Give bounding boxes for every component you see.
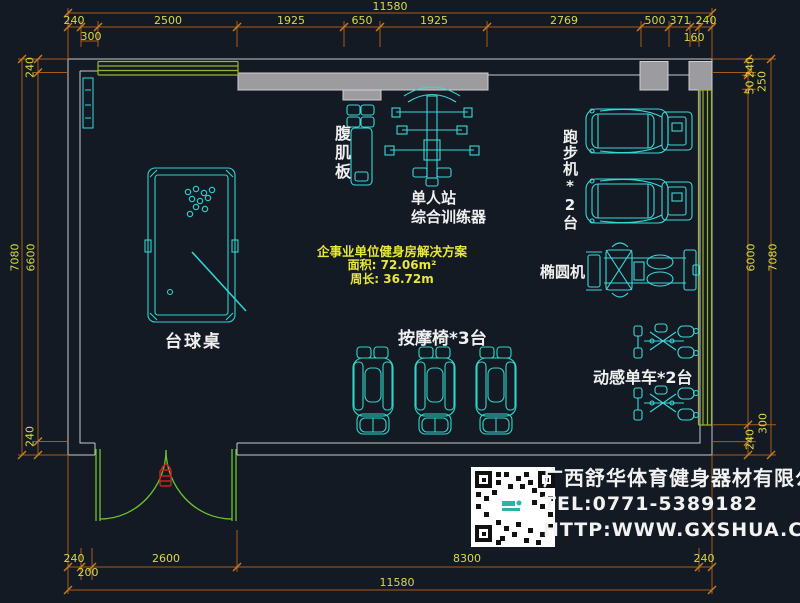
label-trainer-line2: 综合训练器 [411,206,486,227]
dim-bottom-total: 11580 [375,577,419,589]
solution-title: 企事业单位健身房解决方案 [314,245,470,258]
dim-left-total: 7080 [10,236,23,280]
dim-label: 240 [52,15,96,27]
label-trainer-line1: 单人站 [411,187,456,208]
dim-label: 240 [25,46,38,90]
wall-fixture [83,78,93,128]
dim-label: 240 [745,418,758,462]
dim-label: 2769 [542,15,586,27]
dim-label: 650 [340,15,384,27]
pool-table-drawing [145,168,246,322]
dim-label: 2600 [144,553,188,565]
label-pool-table: 台球桌 [165,327,222,352]
company-tel: TEL:0771-5389182 [543,494,800,515]
dim-label: 300 [69,31,113,43]
label-treadmill: 跑步机*2台 [560,129,581,231]
massage-chair-drawing [353,347,516,434]
solution-area: 面积: 72.06m² [314,259,470,272]
dim-label: 250 [757,60,770,104]
company-website: HTTP:WWW.GXSHUA.COM [543,520,800,541]
dim-label: 300 [758,402,771,446]
dim-label: 200 [66,567,110,579]
dim-top-total: 11580 [368,1,412,13]
treadmill-drawing [586,109,692,223]
label-massage-chair: 按摩椅*3台 [398,324,487,349]
solution-perimeter: 周长: 36.72m [314,273,470,286]
elliptical-drawing [586,243,699,297]
dim-label: 1925 [269,15,313,27]
dim-right-total: 7080 [768,236,781,280]
entrance-double-door [96,449,236,521]
label-ab-board: 腹肌板 [329,125,353,182]
dim-label: 1925 [412,15,456,27]
dim-label: 160 [672,32,716,44]
label-spin-bike: 动感单车*2台 [593,364,693,388]
solution-note: 企事业单位健身房解决方案 面积: 72.06m² 周长: 36.72m [314,245,470,286]
cad-floor-plan: 11580 240 2500 1925 650 1925 2769 500 37… [0,0,800,603]
dim-label: 6000 [746,236,759,280]
dim-label: 2500 [146,15,190,27]
dim-label: 6600 [26,236,39,280]
dim-label: 240 [25,415,38,459]
trainer-drawing [385,87,479,186]
dim-label: 240 [52,553,96,565]
company-name: 广西舒华体育健身器材有限公司 [543,467,800,489]
dim-label: 8300 [445,553,489,565]
dim-label: 240 [682,553,726,565]
window-top [98,62,238,76]
company-info: 广西舒华体育健身器材有限公司 TEL:0771-5389182 HTTP:WWW… [543,467,800,541]
label-elliptical: 椭圆机 [540,261,585,282]
dim-label: 240 [684,15,728,27]
wall-solid-segments [238,62,712,101]
